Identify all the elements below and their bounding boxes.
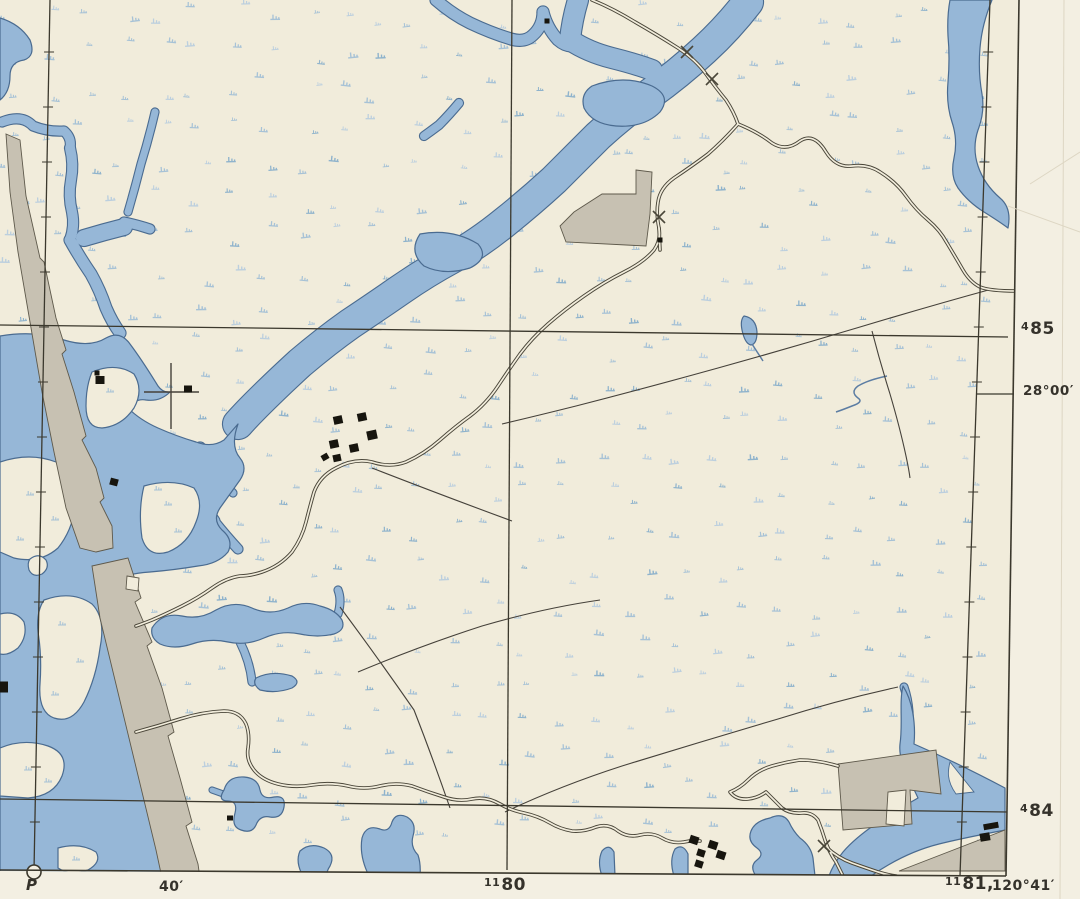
marsh-island	[28, 556, 47, 576]
building	[95, 371, 100, 376]
grid-label-1181: 1181,	[945, 874, 994, 894]
building	[96, 376, 105, 384]
clearing-patch	[886, 790, 906, 826]
grid-label-485-superscript: 4	[1021, 320, 1029, 333]
water-body	[600, 847, 616, 876]
map-sheet: 485 28°00′ 484 P 40′ 1180 1181, 120°41′	[0, 0, 1080, 899]
building	[0, 682, 8, 693]
clearing-patch	[126, 576, 139, 591]
grid-label-484-superscript: 4	[1020, 802, 1028, 815]
creek	[70, 148, 73, 240]
grid-label-1181-superscript: 11	[945, 875, 961, 888]
water-body	[672, 847, 688, 876]
building	[227, 816, 233, 821]
creek	[84, 227, 124, 238]
grid-label-1180: 1180	[484, 875, 526, 895]
water-body	[255, 673, 297, 691]
longitude-label-120-41: 120°41′	[992, 878, 1055, 894]
creek	[338, 590, 340, 614]
building	[184, 386, 192, 393]
building	[979, 832, 990, 842]
map-canvas	[0, 0, 1080, 899]
latitude-label-28-00: 28°00′	[1023, 383, 1074, 399]
grid-label-485: 485	[1021, 319, 1055, 339]
grid-label-1180-superscript: 11	[484, 876, 500, 889]
grid-label-1181-main: 81,	[962, 874, 994, 894]
minute-label-40: 40′	[159, 879, 184, 895]
building	[658, 238, 663, 243]
meridian-label-p: P	[26, 876, 38, 894]
grid-label-484: 484	[1020, 801, 1054, 821]
grid-label-485-main: 85	[1030, 319, 1055, 339]
grid-label-484-main: 84	[1029, 801, 1054, 821]
building	[545, 19, 550, 24]
grid-label-1180-main: 80	[501, 875, 526, 895]
